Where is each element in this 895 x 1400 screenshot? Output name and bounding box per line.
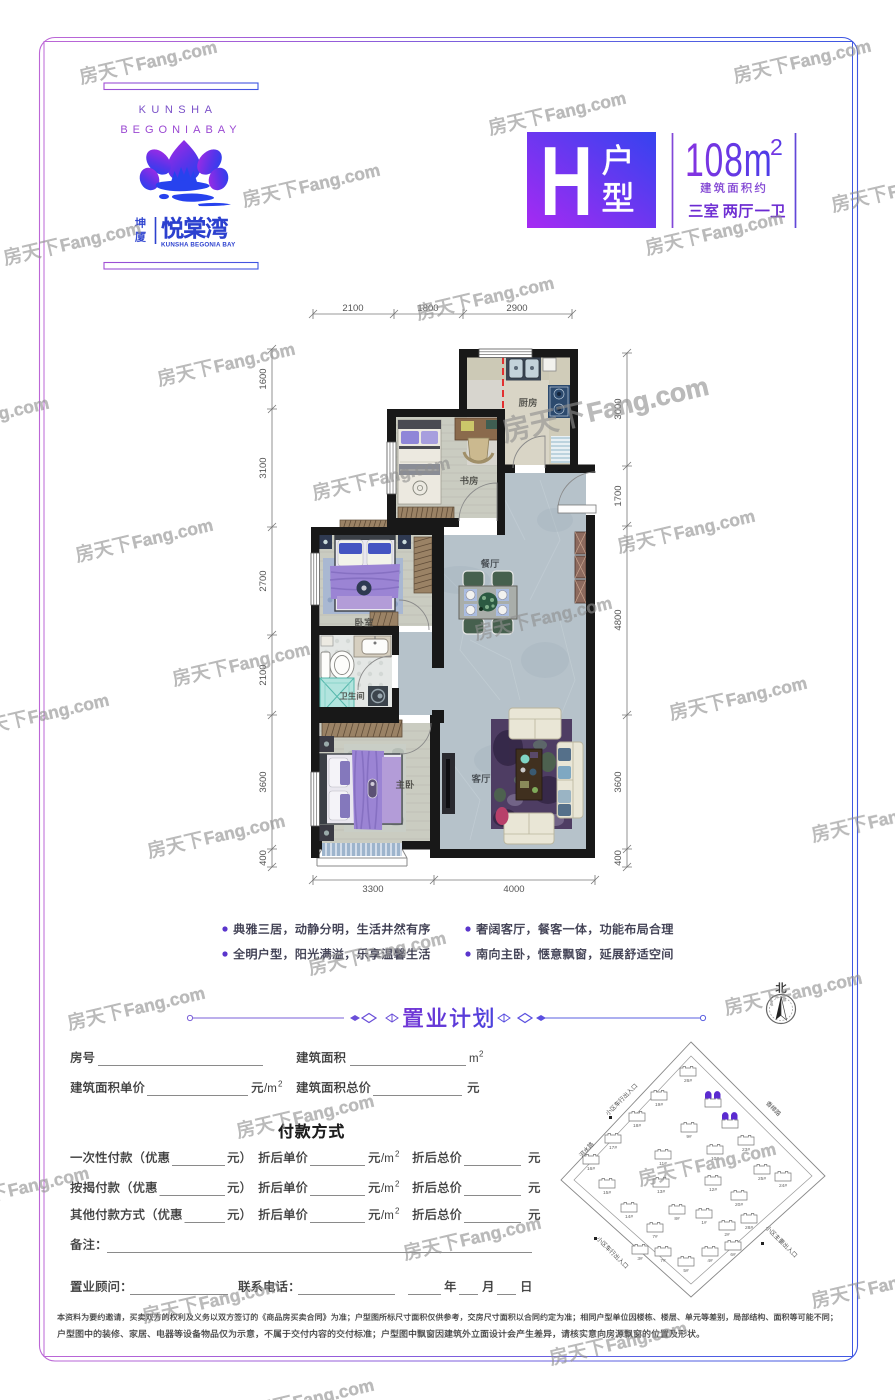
svg-text:13#: 13# <box>657 1189 665 1195</box>
svg-text:5#: 5# <box>683 1268 689 1274</box>
svg-text:7#: 7# <box>652 1234 658 1240</box>
svg-text:9#: 9# <box>686 1134 692 1140</box>
svg-text:KUNSHA BEGONIA BAY: KUNSHA BEGONIA BAY <box>161 242 236 249</box>
svg-text:25#: 25# <box>758 1176 766 1182</box>
svg-text:14#: 14# <box>625 1214 633 1220</box>
svg-text:2: 2 <box>395 1207 400 1216</box>
svg-text:/m: /m <box>264 1083 277 1095</box>
svg-text:26#: 26# <box>684 1078 692 1084</box>
svg-text:2#: 2# <box>724 1232 730 1238</box>
svg-text:1700: 1700 <box>613 485 624 506</box>
svg-text:2: 2 <box>395 1180 400 1189</box>
svg-text:20#: 20# <box>735 1202 743 1208</box>
svg-text:17#: 17# <box>609 1145 617 1151</box>
svg-text:18#: 18# <box>633 1123 641 1129</box>
svg-text:19#: 19# <box>655 1102 663 1108</box>
svg-text:4000: 4000 <box>503 884 524 895</box>
svg-text:1#: 1# <box>701 1220 707 1226</box>
svg-text:6#: 6# <box>730 1252 736 1258</box>
svg-text:m: m <box>469 1053 479 1065</box>
svg-text:2100: 2100 <box>342 303 363 314</box>
svg-text:3600: 3600 <box>258 771 269 792</box>
svg-text:3300: 3300 <box>362 884 383 895</box>
svg-text:2900: 2900 <box>506 303 527 314</box>
svg-text:28#: 28# <box>745 1225 753 1231</box>
svg-text:2: 2 <box>479 1050 484 1059</box>
svg-text:BEGONIABAY: BEGONIABAY <box>120 124 241 136</box>
svg-text:8#: 8# <box>674 1216 680 1222</box>
svg-text:400: 400 <box>258 850 269 866</box>
svg-text:3#: 3# <box>637 1256 643 1262</box>
svg-text:108m: 108m <box>685 134 773 187</box>
svg-text:3100: 3100 <box>258 457 269 478</box>
svg-text:24#: 24# <box>779 1183 787 1189</box>
svg-text:3600: 3600 <box>613 771 624 792</box>
svg-text:7#: 7# <box>660 1258 666 1264</box>
svg-text:4800: 4800 <box>613 609 624 630</box>
svg-text:2: 2 <box>395 1150 400 1159</box>
svg-text:15#: 15# <box>603 1190 611 1196</box>
svg-text:400: 400 <box>613 850 624 866</box>
svg-text:H: H <box>540 128 593 237</box>
svg-text:4#: 4# <box>707 1258 713 1264</box>
svg-text:/m: /m <box>381 1183 394 1195</box>
svg-text:2: 2 <box>278 1080 283 1089</box>
svg-text:/m: /m <box>381 1153 394 1165</box>
svg-text:2700: 2700 <box>258 570 269 591</box>
svg-text:1600: 1600 <box>258 368 269 389</box>
svg-text:/m: /m <box>381 1210 394 1222</box>
svg-text:2: 2 <box>770 134 783 160</box>
svg-text:KUNSHA: KUNSHA <box>139 104 218 116</box>
svg-text:12#: 12# <box>709 1187 717 1193</box>
svg-text:16#: 16# <box>587 1166 595 1172</box>
